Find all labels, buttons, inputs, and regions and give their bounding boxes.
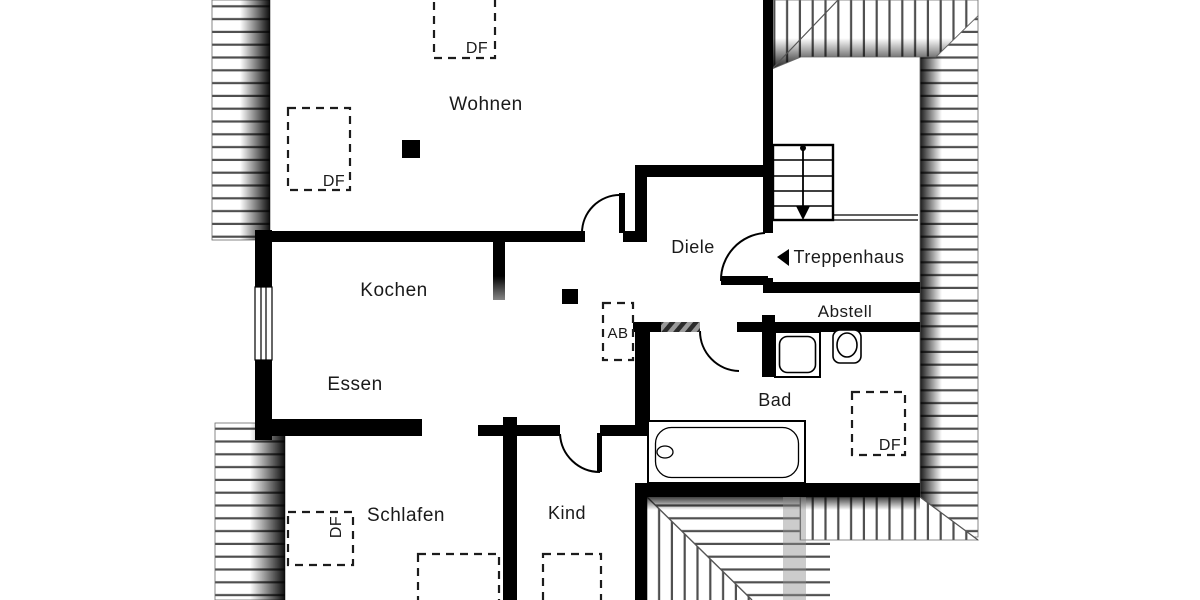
room-label-schlafen: Schlafen <box>367 505 445 526</box>
shower-icon <box>775 332 820 377</box>
roof-gray-strip <box>783 497 806 600</box>
wall-treppenhaus-west <box>763 0 773 233</box>
room-label-kind: Kind <box>548 503 586 523</box>
wall-kind-west <box>503 417 517 600</box>
roof-hatch-left-upper <box>212 0 270 240</box>
column-wohnen <box>402 140 420 158</box>
door-leaf-hatched <box>661 322 700 332</box>
room-label-bad: Bad <box>758 390 792 410</box>
floorplan-canvas: Wohnen Kochen Essen Diele Treppenhaus Ab… <box>0 0 1200 600</box>
door-leaf <box>721 276 768 285</box>
df-label-bad: DF <box>879 437 901 454</box>
roof-hatch-left-lower <box>215 423 285 600</box>
wall-bottom-right-edge <box>635 497 647 600</box>
df-label-wohnen-left: DF <box>323 173 345 190</box>
wall-shower-stub <box>762 315 775 377</box>
wall-wohnen-south <box>255 231 585 242</box>
wall-kochen-stub <box>493 242 505 280</box>
wall-kochen-stub-fade <box>493 276 505 300</box>
wall-essen-south <box>258 419 422 436</box>
plan-background <box>0 0 1200 600</box>
floorplan-svg: Wohnen Kochen Essen Diele Treppenhaus Ab… <box>0 0 1200 600</box>
room-label-essen: Essen <box>327 374 382 395</box>
room-label-wohnen: Wohnen <box>449 94 522 115</box>
wall-bad-north-a <box>633 322 662 332</box>
door-leaf <box>619 193 625 233</box>
bathtub-drain <box>657 446 673 458</box>
wall-diele-north <box>635 165 772 177</box>
stair-walkline-start <box>800 145 806 151</box>
roof-hatch-right-strip <box>920 10 978 540</box>
room-label-kochen: Kochen <box>360 280 427 301</box>
wall-treppenhaus-south <box>763 282 920 293</box>
toilet-icon <box>833 330 861 363</box>
wall-corridor-south-a <box>478 425 560 436</box>
wall-bad-south <box>635 483 920 497</box>
room-label-treppenhaus: Treppenhaus <box>794 247 905 267</box>
df-label-schlafen-rotated: DF <box>328 516 345 538</box>
column-kochen <box>562 289 578 304</box>
door-leaf <box>597 433 602 472</box>
window-left-wall <box>255 287 272 360</box>
room-label-diele: Diele <box>671 237 715 257</box>
bathtub-icon <box>648 421 805 483</box>
df-label-wohnen-top: DF <box>466 40 488 57</box>
room-label-abstell: Abstell <box>818 302 873 321</box>
ab-label: AB <box>607 325 628 342</box>
